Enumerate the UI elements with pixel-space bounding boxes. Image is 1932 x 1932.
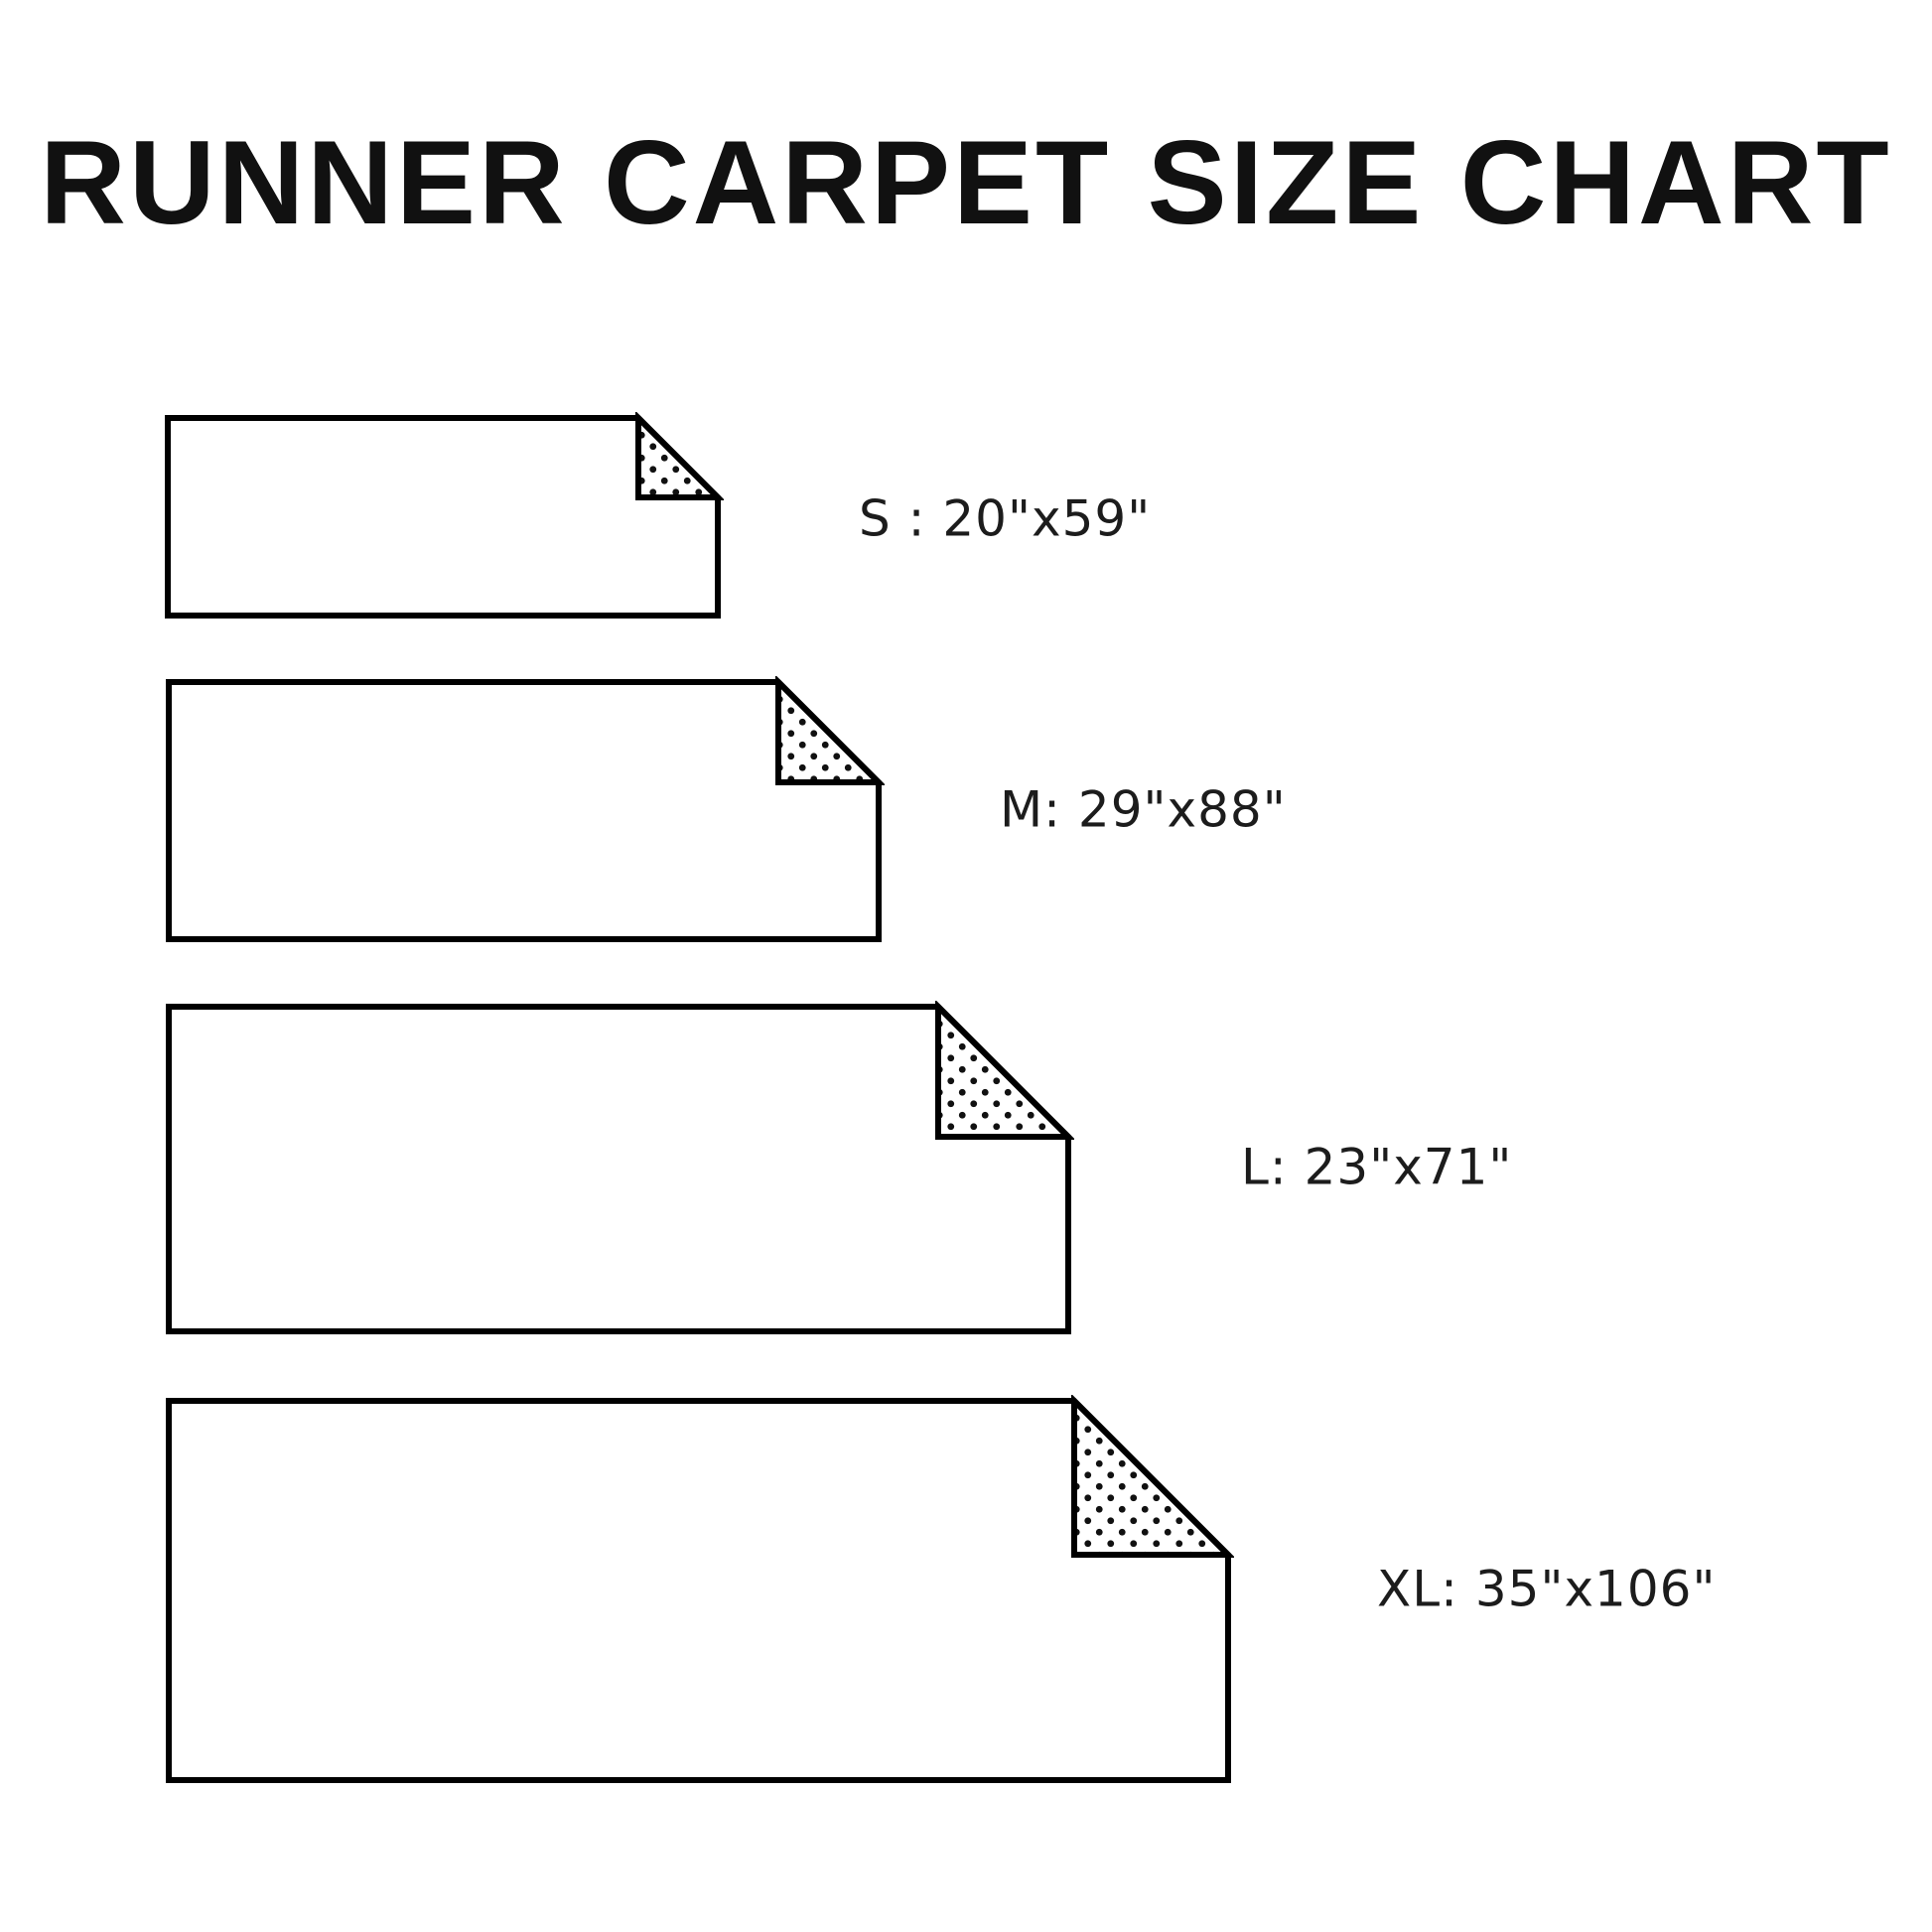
carpet-shape-s: [162, 412, 724, 621]
carpet-shape-xl: [163, 1395, 1234, 1786]
carpet-shape-m: [163, 676, 885, 945]
size-chart-canvas: RUNNER CARPET SIZE CHART S : 20"x59" M: …: [0, 0, 1932, 1932]
size-label-l: L: 23"x71": [1241, 1139, 1512, 1196]
size-label-s: S : 20"x59": [859, 490, 1151, 548]
carpet-shape-l: [163, 1001, 1074, 1337]
size-label-m: M: 29"x88": [1000, 781, 1287, 839]
size-label-xl: XL: 35"x106": [1377, 1561, 1717, 1618]
page-title: RUNNER CARPET SIZE CHART: [0, 117, 1932, 248]
